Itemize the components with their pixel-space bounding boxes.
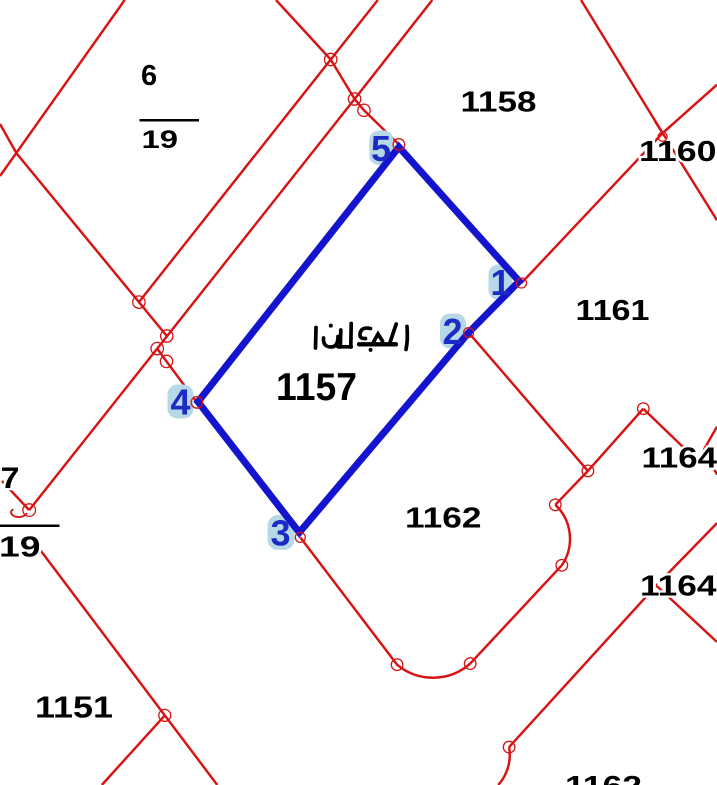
svg-text:1162: 1162 bbox=[405, 503, 482, 535]
svg-text:19: 19 bbox=[0, 532, 41, 564]
svg-text:3: 3 bbox=[270, 513, 290, 554]
svg-text:1162: 1162 bbox=[565, 771, 642, 785]
svg-text:1161: 1161 bbox=[576, 295, 650, 327]
svg-text:1: 1 bbox=[490, 262, 510, 303]
svg-text:2: 2 bbox=[442, 311, 462, 352]
svg-text:1160: 1160 bbox=[639, 136, 717, 168]
svg-text:1151: 1151 bbox=[35, 690, 113, 725]
svg-text:1164: 1164 bbox=[640, 570, 717, 602]
svg-text:1164: 1164 bbox=[642, 443, 717, 475]
svg-text:6: 6 bbox=[141, 60, 157, 92]
svg-text:1157: 1157 bbox=[276, 366, 357, 409]
svg-text:5: 5 bbox=[371, 128, 391, 169]
svg-text:4: 4 bbox=[170, 382, 190, 423]
svg-text:1158: 1158 bbox=[461, 87, 537, 119]
svg-text:19: 19 bbox=[142, 126, 179, 154]
svg-text:7: 7 bbox=[1, 462, 20, 495]
